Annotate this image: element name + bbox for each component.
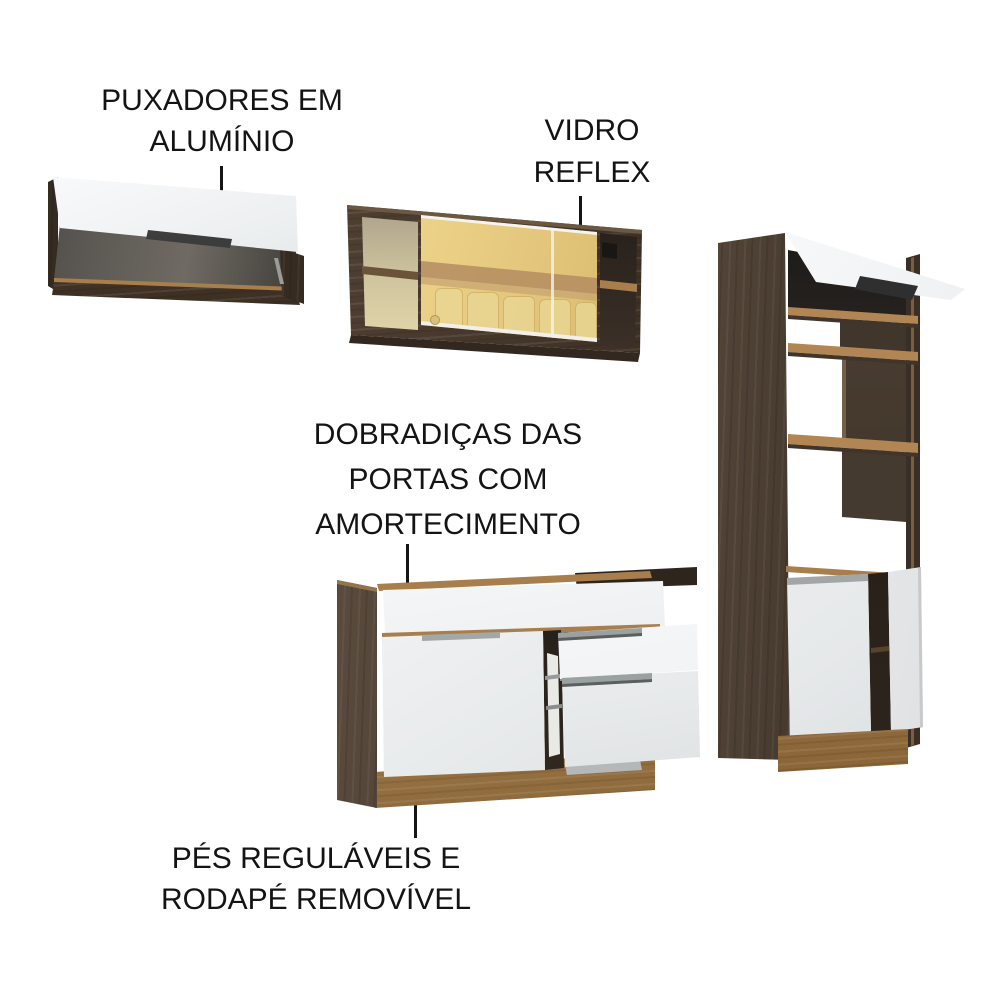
annotation-line: PORTAS COM [278, 457, 618, 502]
kitchen-cabinet-feature-diagram: PUXADORES EM ALUMÍNIO VIDRO REFLEX DOBRA… [0, 0, 1000, 1000]
wall-cabinet-flip-door [46, 168, 306, 313]
annotation-line: REFLEX [492, 152, 692, 194]
annotation-line: AMORTECIMENTO [278, 502, 618, 547]
annotation-line: DOBRADIÇAS DAS [278, 412, 618, 457]
annotation-soft-close-hinges: DOBRADIÇAS DAS PORTAS COM AMORTECIMENTO [278, 412, 618, 547]
base-cabinet-drawers [330, 558, 708, 818]
annotation-line: PUXADORES EM [52, 80, 392, 121]
annotation-line: ALUMÍNIO [52, 121, 392, 162]
annotation-line: VIDRO [492, 110, 692, 152]
tall-oven-cabinet [700, 222, 968, 780]
glass-door-knob [430, 315, 440, 325]
annotation-line: RODAPÉ REMOVÍVEL [136, 879, 496, 920]
annotation-aluminum-handles: PUXADORES EM ALUMÍNIO [52, 80, 392, 162]
annotation-adjustable-feet: PÉS REGULÁVEIS E RODAPÉ REMOVÍVEL [136, 838, 496, 920]
annotation-reflex-glass: VIDRO REFLEX [492, 110, 692, 194]
wall-cabinet-reflex-glass [335, 200, 650, 372]
annotation-line: PÉS REGULÁVEIS E [136, 838, 496, 879]
